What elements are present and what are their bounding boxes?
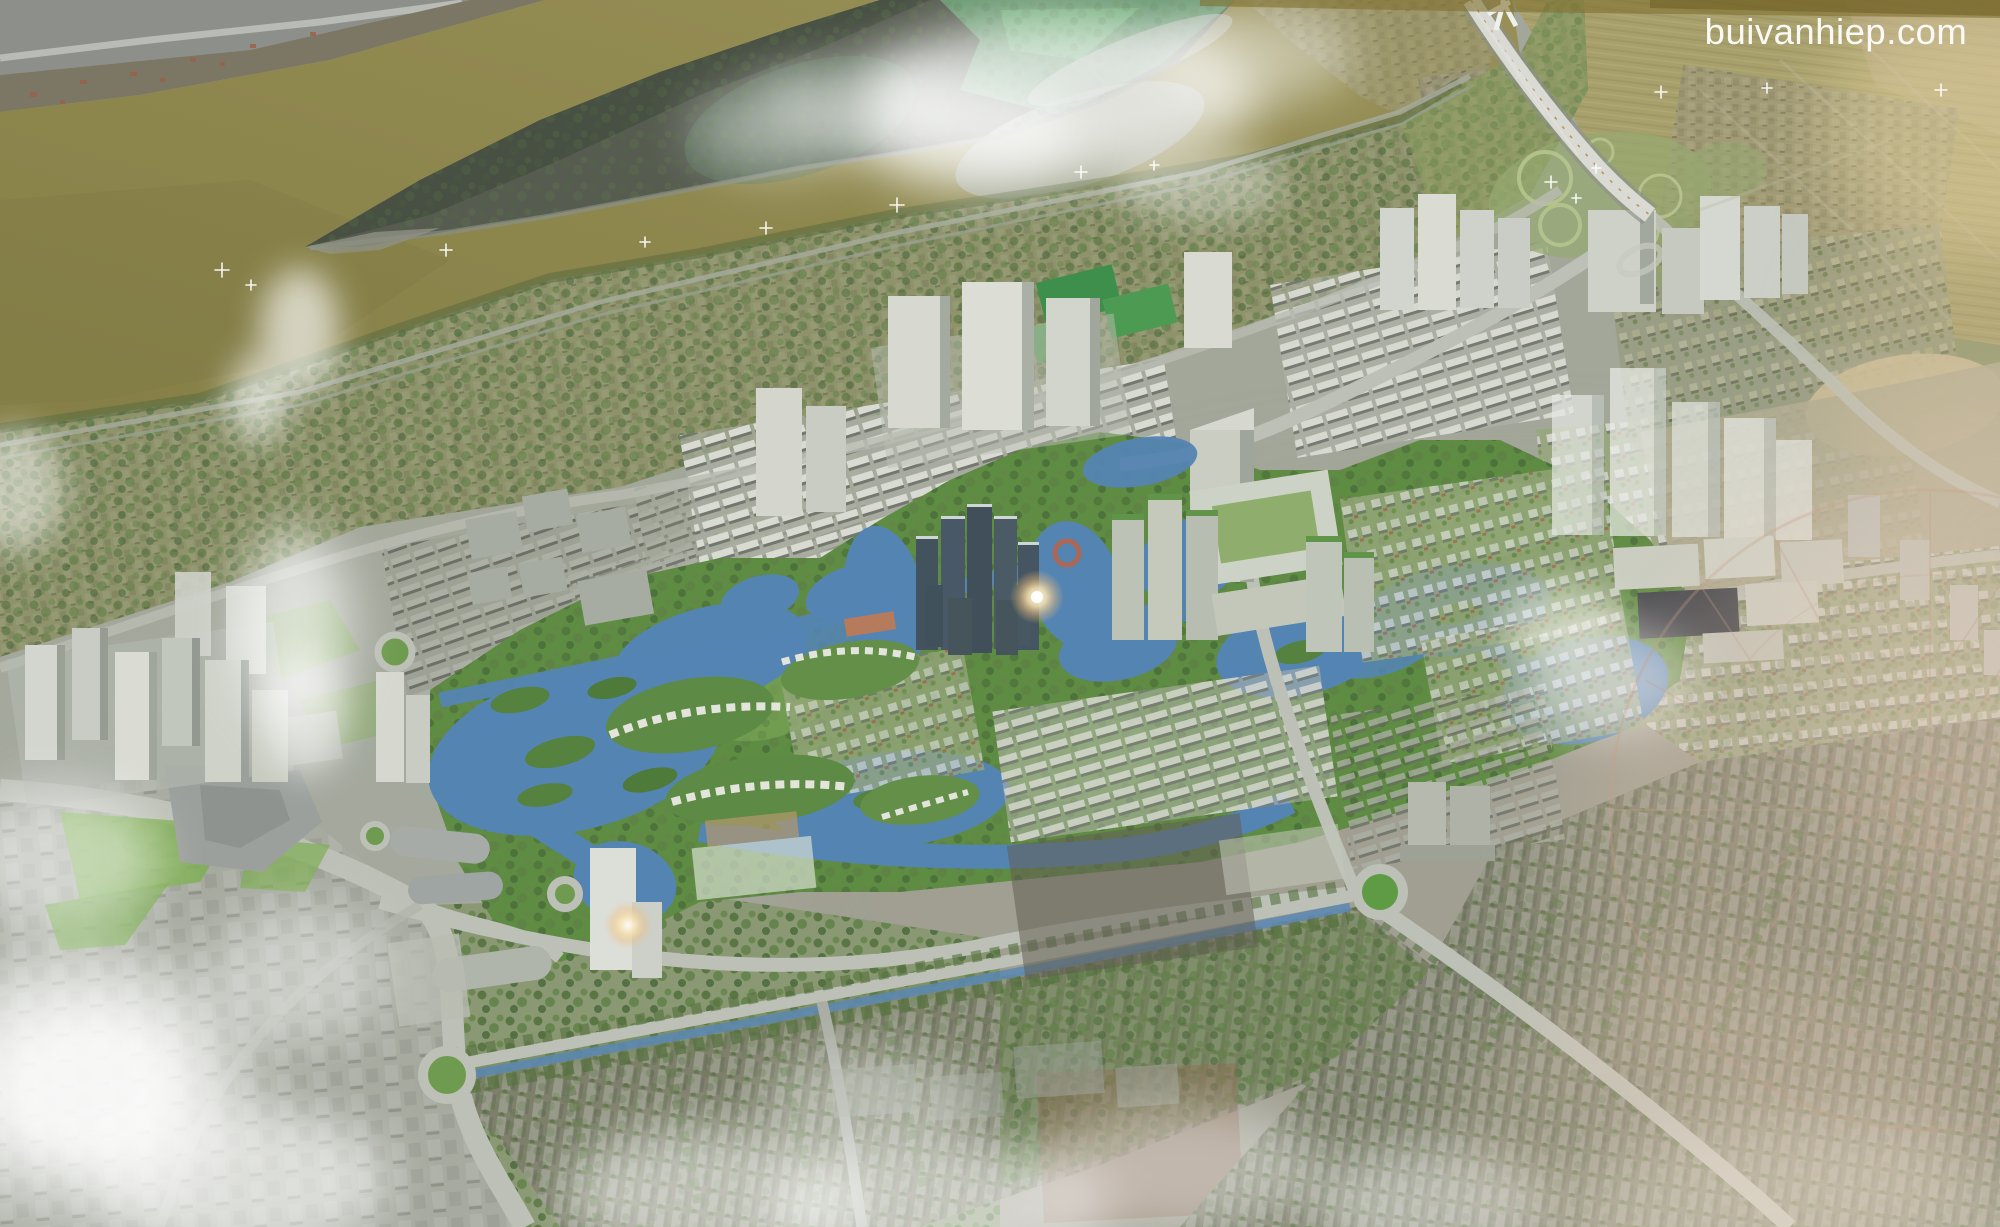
svg-text:buivanhiep.com: buivanhiep.com — [1705, 11, 1968, 52]
